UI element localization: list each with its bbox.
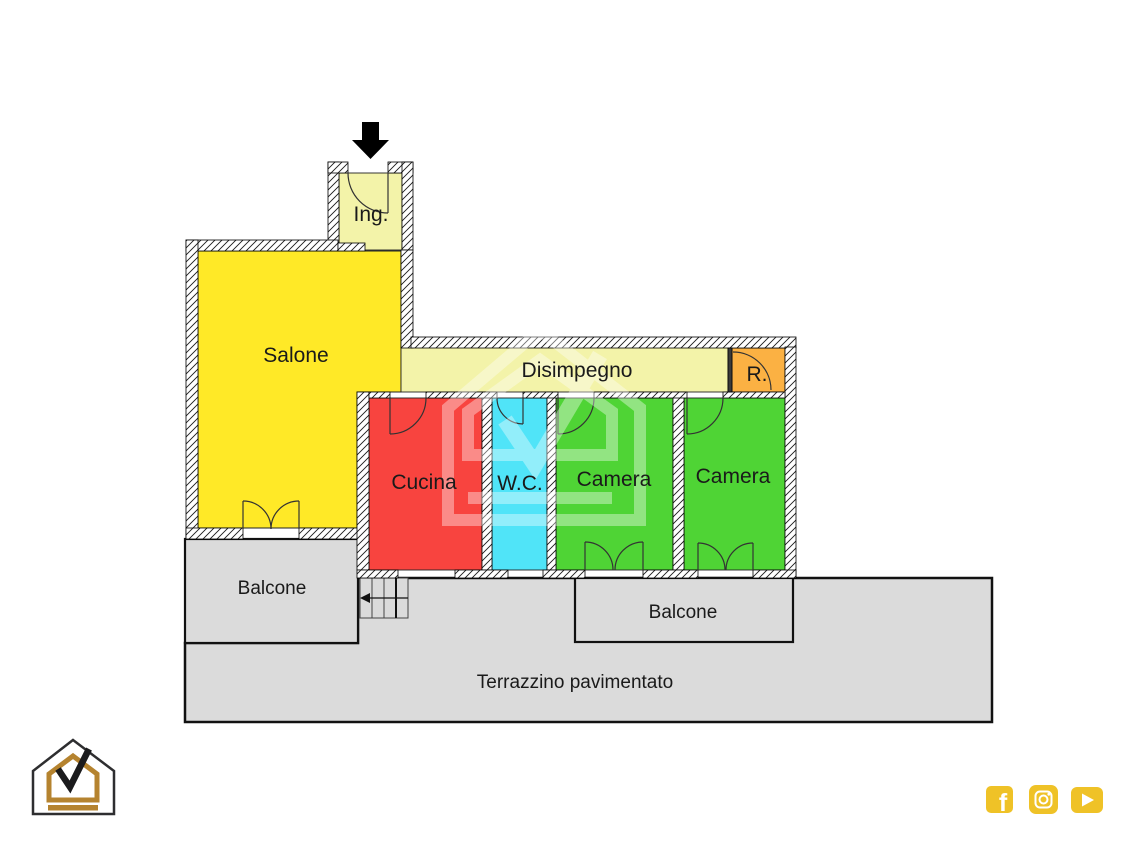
wall-segment: [785, 347, 796, 578]
label-cucina: Cucina: [391, 471, 457, 494]
floor-plan-drawing: Ing. Salone Disimpegno R. Cucina W.C. Ca…: [0, 0, 1133, 850]
wall-segment: [186, 528, 243, 539]
label-terrazzino: Terrazzino pavimentato: [477, 672, 673, 693]
wall-segment: [357, 570, 398, 578]
label-camera-1: Camera: [577, 468, 652, 491]
label-wc: W.C.: [497, 472, 543, 495]
wall-segment: [401, 250, 413, 348]
wall-segment: [186, 240, 338, 251]
facebook-icon: f: [986, 786, 1013, 817]
wall-segment: [411, 337, 796, 348]
label-camera-2: Camera: [696, 465, 771, 488]
entrance-arrow-icon: [352, 122, 389, 159]
instagram-icon: [1029, 785, 1058, 814]
wall-segment: [455, 570, 508, 578]
wall-segment: [543, 570, 585, 578]
label-balcone-left: Balcone: [238, 578, 307, 599]
wall-segment: [673, 392, 684, 570]
house-check-logo: [33, 740, 114, 814]
label-ingresso: Ing.: [353, 203, 388, 226]
wall-segment: [186, 240, 198, 539]
wall-segment: [328, 162, 339, 250]
label-ripostiglio: R.: [747, 363, 768, 386]
facebook-glyph: f: [999, 789, 1008, 817]
label-balcone-right: Balcone: [649, 602, 718, 623]
wall-segment: [357, 392, 369, 570]
label-disimpegno: Disimpegno: [522, 359, 633, 382]
social-icons: f: [986, 785, 1103, 817]
wall-segment: [328, 162, 348, 173]
youtube-icon: [1071, 787, 1103, 813]
wall-segment: [402, 162, 413, 250]
wall-segment: [728, 348, 732, 392]
wall-segment: [482, 392, 492, 570]
wall-segment: [369, 392, 390, 398]
wall-segment: [299, 528, 360, 539]
stairs-icon: [360, 578, 408, 618]
wall-segment: [723, 392, 785, 398]
floor-plan-page: Ing. Salone Disimpegno R. Cucina W.C. Ca…: [0, 0, 1133, 850]
wall-segment: [338, 243, 365, 251]
logo-base-bar: [48, 805, 98, 811]
wall-segment: [753, 570, 796, 578]
label-salone: Salone: [263, 344, 328, 367]
wall-segment: [523, 392, 558, 398]
wall-segment: [643, 570, 698, 578]
wall-segment: [594, 392, 687, 398]
